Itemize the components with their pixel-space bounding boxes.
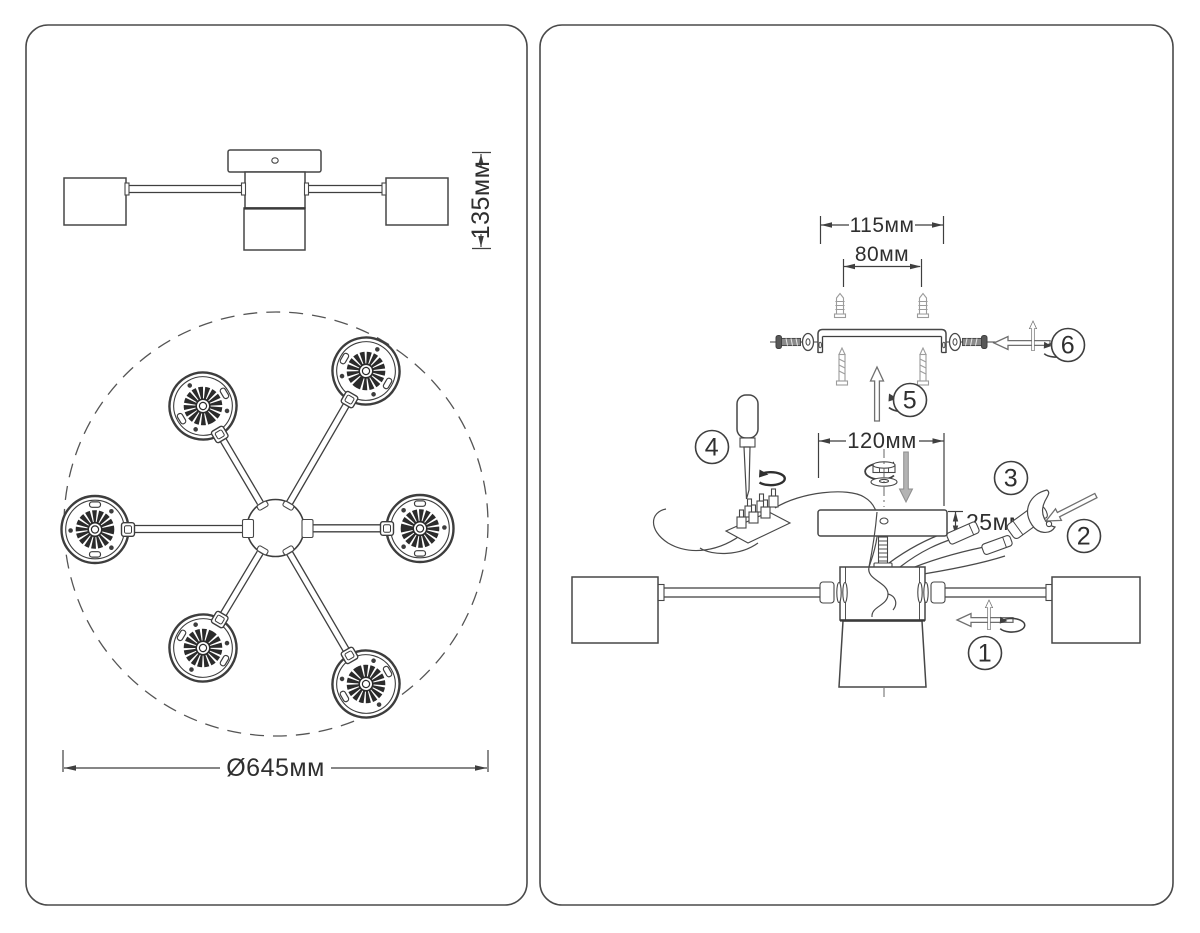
- height-dimension-label: 135мм: [467, 161, 495, 240]
- washer-icon: [950, 334, 961, 351]
- right-panel: [540, 25, 1173, 905]
- center-body: [245, 172, 305, 208]
- canopy-hole: [880, 518, 888, 524]
- fixture-body: [840, 567, 925, 620]
- step-5-number: 5: [903, 387, 917, 415]
- center-shade: [244, 208, 305, 250]
- diameter-dimension-label: Ø645мм: [226, 754, 325, 782]
- right-shade: [386, 178, 448, 225]
- washer-icon: [803, 334, 814, 351]
- bracket-width-label: 115мм: [850, 214, 915, 237]
- right-lamp-shade: [1052, 577, 1140, 643]
- step-2-number: 2: [1077, 523, 1091, 551]
- step-1-number: 1: [978, 640, 992, 668]
- step-6-number: 6: [1061, 332, 1075, 360]
- step-3-number: 3: [1004, 465, 1018, 493]
- canopy-width-label: 120мм: [847, 428, 916, 453]
- center-lamp-shade: [839, 621, 926, 687]
- left-lamp-shade: [572, 577, 658, 643]
- step-4-number: 4: [705, 434, 719, 462]
- plate-hole: [272, 158, 278, 163]
- screw-spacing-label: 80мм: [855, 243, 909, 266]
- diagram-canvas: 135мм: [0, 0, 1200, 933]
- height-dimension: 135мм: [467, 153, 495, 249]
- instruction-sheet: 135мм: [0, 0, 1200, 933]
- left-shade: [64, 178, 126, 225]
